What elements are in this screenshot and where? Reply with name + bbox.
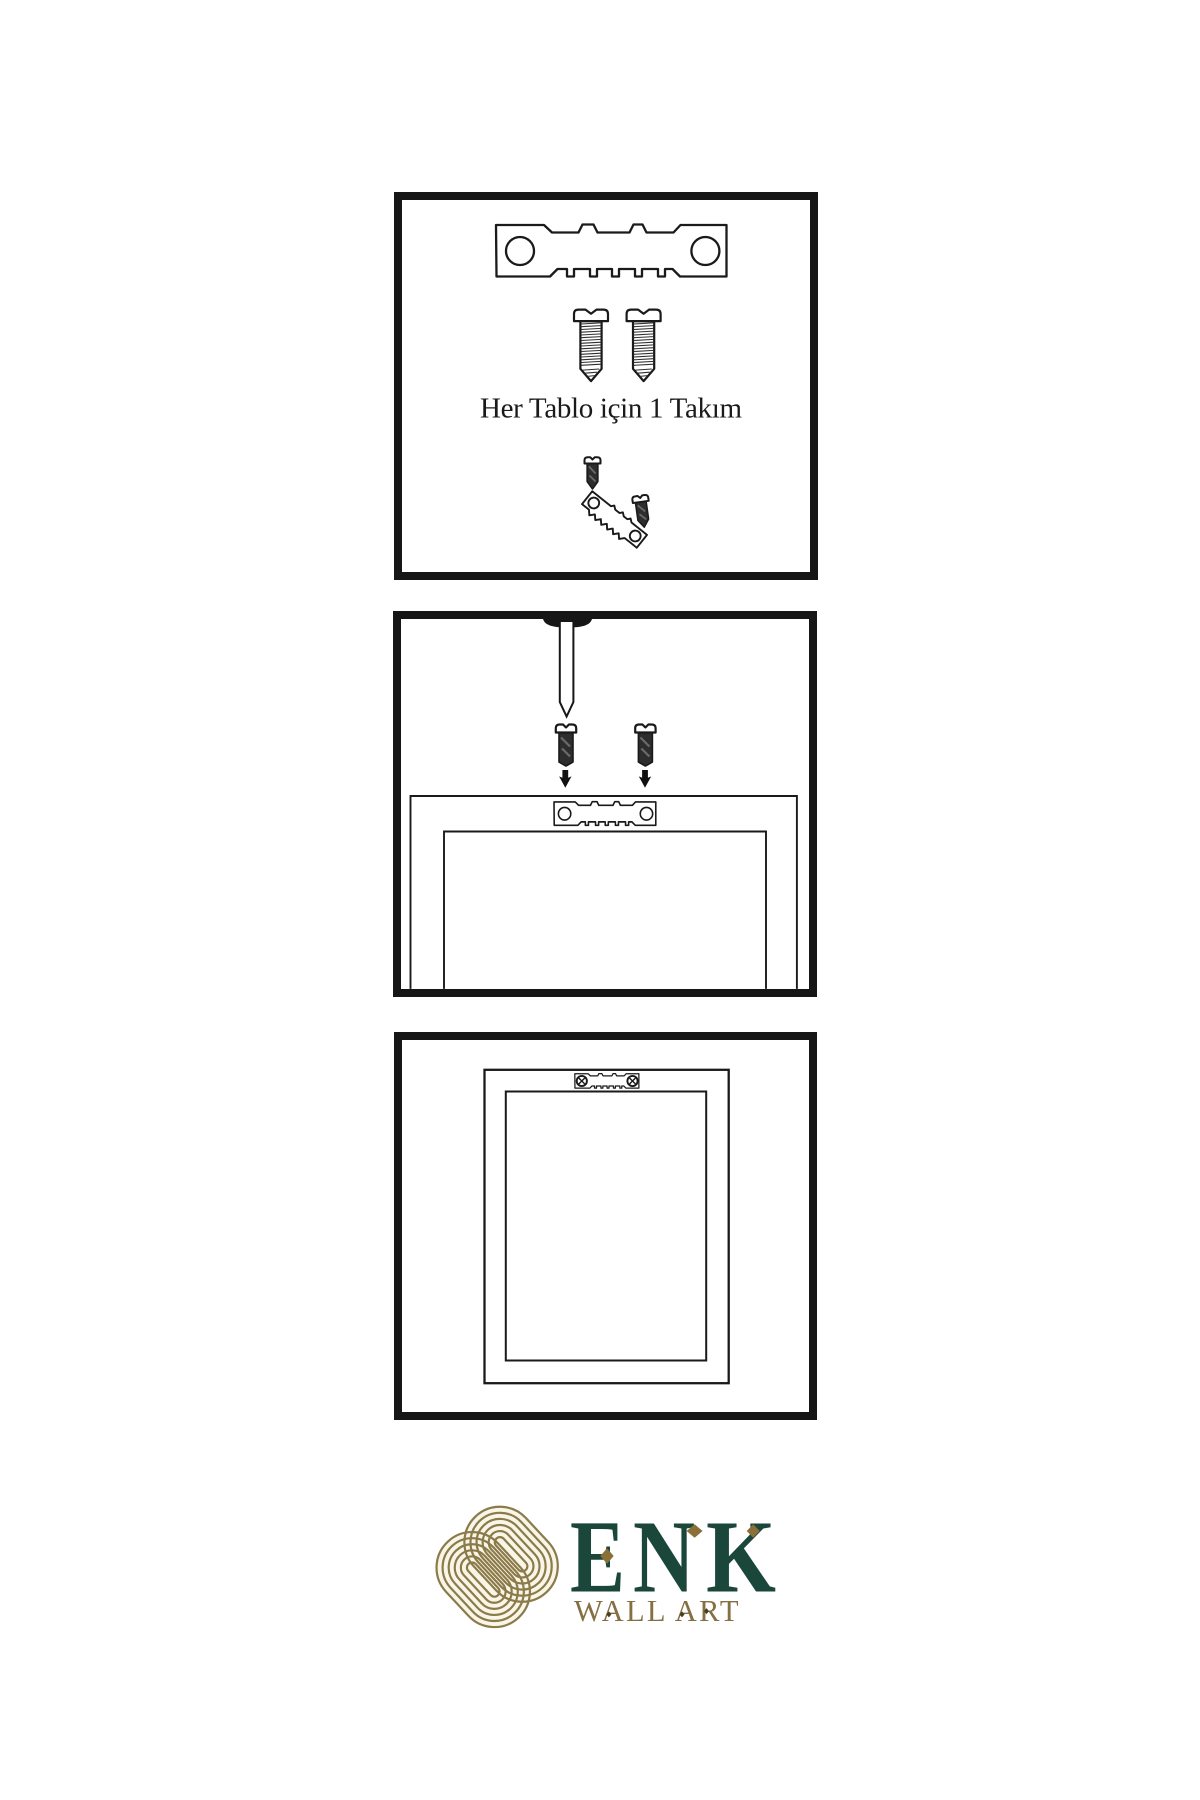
svg-text:WALL ART: WALL ART xyxy=(574,1594,739,1628)
svg-text:Her Tablo için 1 Takım: Her Tablo için 1 Takım xyxy=(480,393,742,425)
